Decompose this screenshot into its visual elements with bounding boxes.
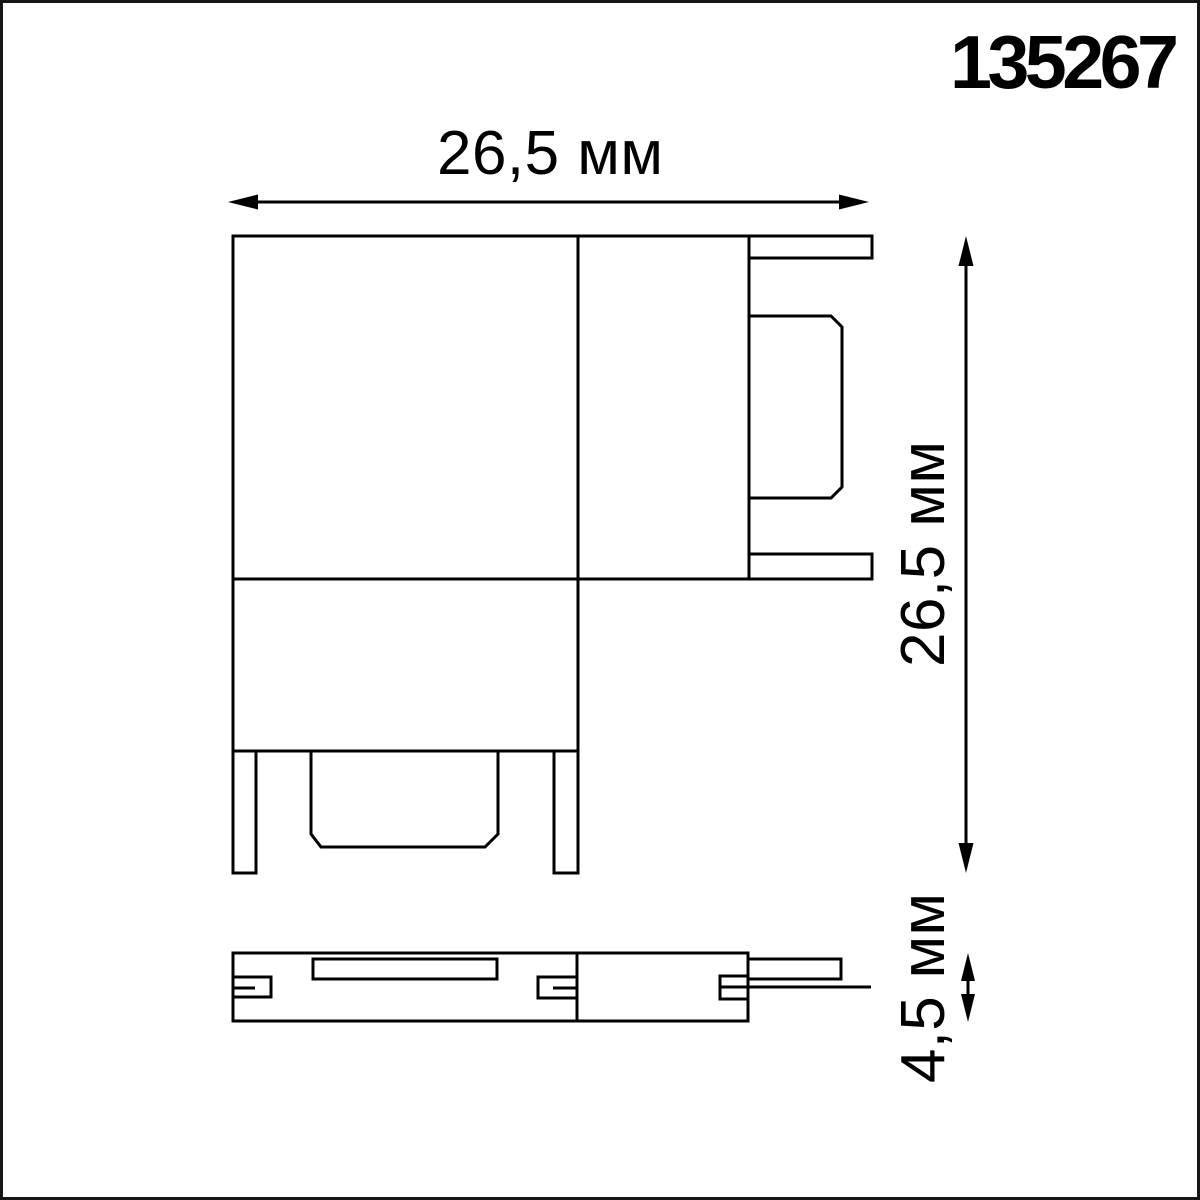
svg-text:4,5 мм: 4,5 мм xyxy=(889,893,958,1083)
svg-text:26,5 мм: 26,5 мм xyxy=(889,441,958,667)
svg-text:26,5 мм: 26,5 мм xyxy=(437,119,663,188)
svg-text:135267: 135267 xyxy=(950,20,1179,104)
